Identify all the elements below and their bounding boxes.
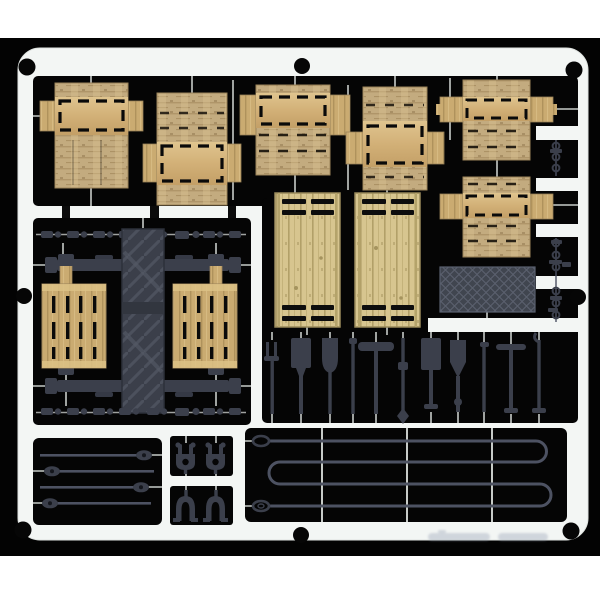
crate-flat-2 bbox=[143, 93, 241, 205]
crate-flat-1 bbox=[40, 83, 143, 188]
tarp-bundle bbox=[122, 229, 164, 413]
tread-plate-panel bbox=[440, 267, 535, 312]
wooden-door-left bbox=[275, 193, 340, 327]
model-sprue-photo bbox=[0, 0, 600, 600]
pallet-left bbox=[42, 284, 106, 368]
wooden-door-right bbox=[355, 193, 420, 327]
pallet-right bbox=[173, 284, 237, 368]
screenshot bbox=[0, 0, 600, 600]
